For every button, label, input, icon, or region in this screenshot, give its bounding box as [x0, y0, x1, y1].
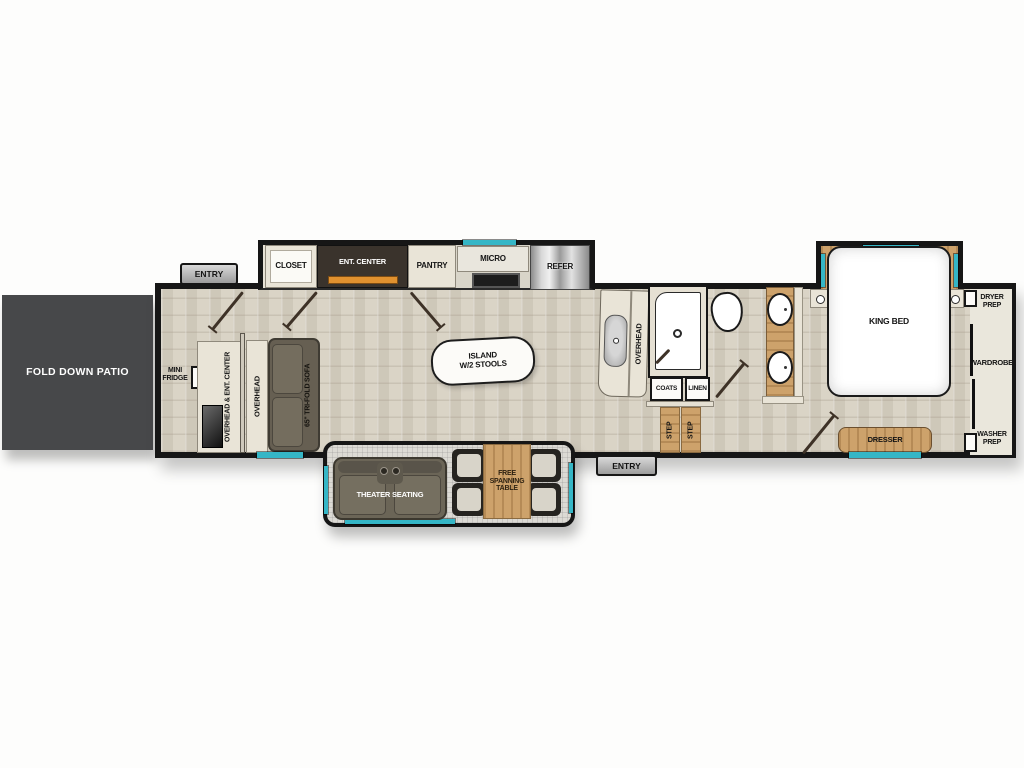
- dryer-prep-box: [964, 290, 977, 307]
- island-label: ISLAND W/2 STOOLS: [459, 351, 507, 371]
- garage-window: [257, 452, 303, 458]
- step-1-label: STEP: [661, 408, 679, 452]
- wall-stub: [240, 333, 245, 453]
- dinette-chair: [452, 449, 486, 482]
- kitchen-slide: CLOSET ENT. CENTER PANTRY MICRO REFER: [258, 240, 595, 290]
- kitchen-sink: [603, 314, 627, 367]
- tri-fold-sofa: 65" TRI-FOLD SOFA: [268, 338, 320, 452]
- washer-prep-label: WASHER PREP: [974, 431, 1010, 447]
- microwave: MICRO: [457, 246, 529, 272]
- wardrobe-label: WARDROBE: [970, 359, 1012, 367]
- counter-overhead-label: OVERHEAD: [629, 291, 649, 396]
- micro-label: MICRO: [480, 255, 506, 264]
- vanity-sink-icon: [767, 293, 793, 326]
- table-label: FREE SPANNING TABLE: [490, 470, 525, 493]
- step-1: STEP: [660, 407, 680, 453]
- refer-label: REFER: [547, 263, 573, 272]
- refrigerator: REFER: [530, 245, 590, 290]
- vanity-side-panel: [794, 287, 803, 397]
- entry-badge-front: ENTRY: [180, 263, 238, 285]
- floorplan-canvas: FOLD DOWN PATIO CLOSET ENT. CENTER PANTR…: [0, 0, 1024, 768]
- dresser: DRESSER: [838, 427, 932, 453]
- overhead-ent-center-cabinet: OVERHEAD & ENT. CENTER: [197, 341, 241, 453]
- overhead-cabinet-label: OVERHEAD: [247, 341, 267, 452]
- fold-down-patio: FOLD DOWN PATIO: [2, 295, 153, 450]
- coats-closet: COATS: [650, 377, 683, 401]
- dinette-window-left: [324, 466, 328, 514]
- kitchen-counter: OVERHEAD: [598, 289, 650, 397]
- overhead-ent-center-label: OVERHEAD & ENT. CENTER: [216, 342, 240, 452]
- dinette-chair: [452, 483, 486, 516]
- bed-slide-window-right: [954, 254, 958, 287]
- dinette-window-right: [569, 463, 573, 513]
- washer-prep-box: [964, 433, 977, 452]
- vanity-end-cap: [762, 396, 804, 404]
- vanity-sink-icon: [767, 351, 793, 384]
- ent-center-cabinet: ENT. CENTER: [317, 245, 408, 288]
- range-icon: [472, 273, 520, 288]
- bed-slide-window-left: [821, 254, 825, 287]
- entry-badge-main: ENTRY: [596, 455, 657, 476]
- closet-base-shelf: [646, 401, 714, 407]
- tri-fold-sofa-label: 65" TRI-FOLD SOFA: [298, 340, 318, 450]
- step-2-label: STEP: [682, 408, 700, 452]
- king-bed-label: KING BED: [869, 317, 909, 327]
- pantry-cabinet: PANTRY: [408, 245, 456, 288]
- mini-fridge-label: MINI FRIDGE: [158, 367, 192, 383]
- dryer-prep-label: DRYER PREP: [974, 294, 1010, 310]
- entry-front-label: ENTRY: [195, 269, 224, 279]
- overhead-cabinet: OVERHEAD: [246, 340, 268, 453]
- shower: [648, 285, 708, 378]
- entry-main-label: ENTRY: [612, 461, 641, 471]
- free-spanning-table: FREE SPANNING TABLE: [483, 444, 531, 519]
- micro-range-unit: MICRO: [456, 245, 530, 288]
- wardrobe-door-track: [970, 324, 973, 376]
- lamp-icon: [951, 295, 960, 304]
- theater-seating: THEATER SEATING: [333, 457, 447, 520]
- wardrobe-door-track: [972, 379, 975, 429]
- bedroom-window: [849, 452, 921, 458]
- faucet-icon: [613, 338, 619, 344]
- kitchen-window: [463, 240, 516, 245]
- coats-label: COATS: [656, 385, 677, 392]
- shower-drain-icon: [673, 329, 682, 338]
- kitchen-island: ISLAND W/2 STOOLS: [430, 335, 536, 386]
- wardrobe-column: DRYER PREP WARDROBE WASHER PREP: [970, 289, 1012, 455]
- ent-center-label: ENT. CENTER: [339, 258, 386, 266]
- dinette-chair: [527, 449, 561, 482]
- dinette-chair: [527, 483, 561, 516]
- lamp-icon: [816, 295, 825, 304]
- patio-label: FOLD DOWN PATIO: [26, 367, 129, 379]
- ent-center-accent: [328, 276, 398, 284]
- dresser-label: DRESSER: [868, 436, 903, 444]
- pantry-label: PANTRY: [417, 262, 448, 271]
- closet-cabinet: CLOSET: [265, 245, 317, 288]
- linen-closet: LINEN: [685, 377, 710, 401]
- theater-seating-label: THEATER SEATING: [357, 491, 424, 499]
- step-2: STEP: [681, 407, 701, 453]
- linen-label: LINEN: [688, 385, 707, 392]
- king-bed: KING BED: [827, 246, 951, 397]
- closet-label: CLOSET: [275, 262, 306, 271]
